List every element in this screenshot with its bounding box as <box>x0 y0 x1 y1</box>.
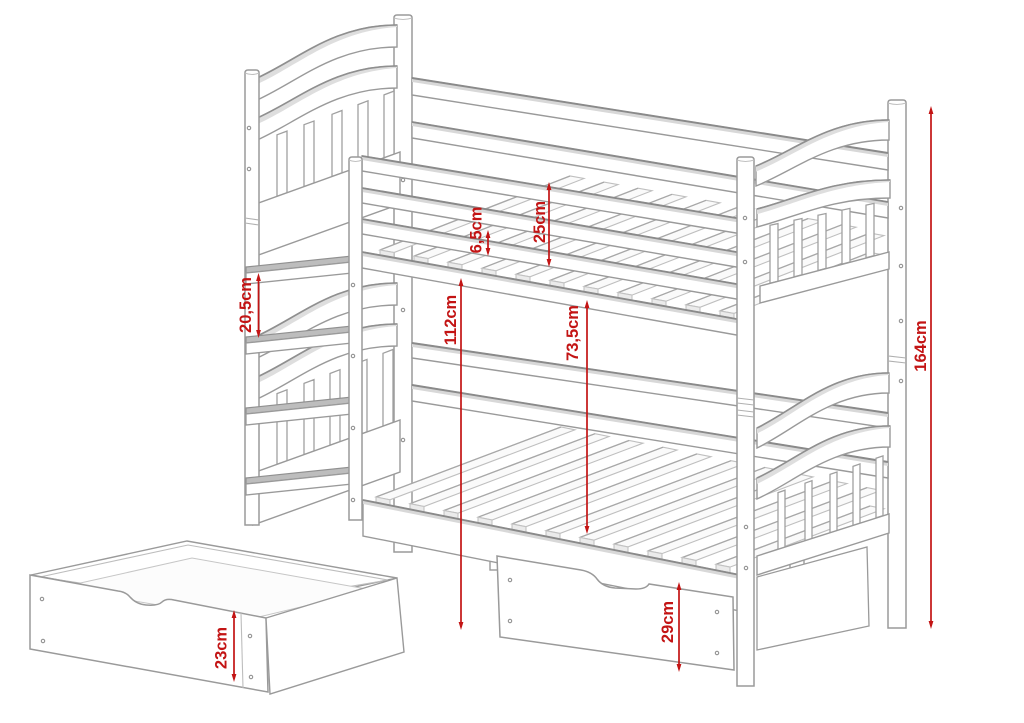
svg-text:23cm: 23cm <box>213 627 231 669</box>
svg-text:164cm: 164cm <box>912 320 930 371</box>
svg-text:25cm: 25cm <box>531 201 549 243</box>
svg-text:29cm: 29cm <box>659 601 677 643</box>
svg-text:73,5cm: 73,5cm <box>564 305 582 361</box>
svg-text:112cm: 112cm <box>442 295 460 345</box>
svg-text:20,5cm: 20,5cm <box>237 277 255 333</box>
svg-text:6,5cm: 6,5cm <box>468 207 486 254</box>
